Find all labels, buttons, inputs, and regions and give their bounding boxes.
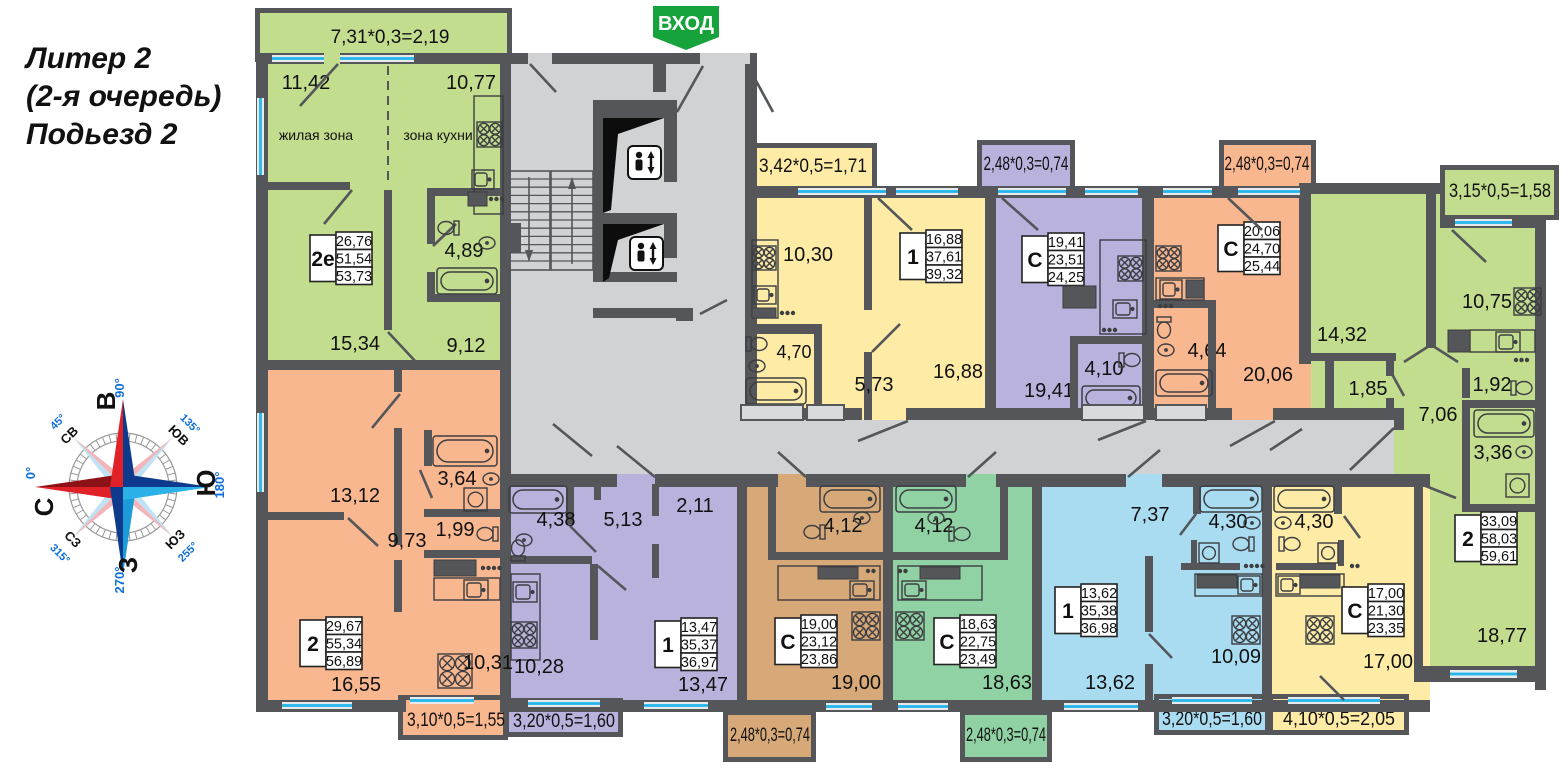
svg-text:51,54: 51,54 xyxy=(336,251,372,267)
svg-text:36,98: 36,98 xyxy=(1081,621,1117,637)
svg-text:14,32: 14,32 xyxy=(1317,324,1367,346)
svg-text:4,12: 4,12 xyxy=(915,515,954,537)
svg-text:1: 1 xyxy=(662,634,674,657)
svg-text:19,41: 19,41 xyxy=(1024,380,1074,402)
svg-text:9,73: 9,73 xyxy=(388,530,427,552)
svg-text:10,09: 10,09 xyxy=(1211,646,1261,668)
svg-text:СЗ: СЗ xyxy=(61,528,84,551)
svg-text:23,49: 23,49 xyxy=(960,652,996,668)
svg-text:90°: 90° xyxy=(112,378,127,398)
svg-text:180°: 180° xyxy=(212,472,227,499)
svg-text:5,13: 5,13 xyxy=(604,509,643,531)
svg-text:36,97: 36,97 xyxy=(681,655,717,671)
svg-text:59,61: 59,61 xyxy=(1481,549,1517,565)
svg-text:16,55: 16,55 xyxy=(331,674,381,696)
svg-text:270°: 270° xyxy=(112,567,127,594)
svg-text:16,88: 16,88 xyxy=(926,232,962,248)
svg-text:1,99: 1,99 xyxy=(436,519,475,541)
svg-text:25,44: 25,44 xyxy=(1244,259,1280,275)
svg-text:7,06: 7,06 xyxy=(1419,404,1458,426)
svg-text:10,77: 10,77 xyxy=(446,72,496,94)
svg-text:4,89: 4,89 xyxy=(445,240,484,262)
svg-text:18,77: 18,77 xyxy=(1477,625,1527,647)
svg-text:18,63: 18,63 xyxy=(982,672,1032,694)
svg-text:19,00: 19,00 xyxy=(801,617,837,633)
svg-text:3,15*0,5=1,58: 3,15*0,5=1,58 xyxy=(1449,181,1551,202)
svg-text:1: 1 xyxy=(1062,600,1074,623)
svg-text:2,48*0,3=0,74: 2,48*0,3=0,74 xyxy=(730,725,810,746)
svg-text:С: С xyxy=(1223,238,1238,261)
svg-text:4,64: 4,64 xyxy=(1188,340,1227,362)
svg-text:3,20*0,5=1,60: 3,20*0,5=1,60 xyxy=(513,711,615,732)
svg-text:3,36: 3,36 xyxy=(1474,442,1513,464)
svg-text:13,47: 13,47 xyxy=(678,674,728,696)
svg-text:3,20*0,5=1,60: 3,20*0,5=1,60 xyxy=(1162,709,1262,730)
svg-text:2,48*0,3=0,74: 2,48*0,3=0,74 xyxy=(984,154,1069,175)
svg-text:13,62: 13,62 xyxy=(1085,672,1135,694)
svg-text:Подьезд 2: Подьезд 2 xyxy=(26,118,178,151)
svg-text:4,30: 4,30 xyxy=(1295,511,1334,533)
svg-text:23,35: 23,35 xyxy=(1368,621,1404,637)
svg-text:24,70: 24,70 xyxy=(1244,241,1280,257)
svg-text:23,12: 23,12 xyxy=(801,634,837,650)
svg-text:9,12: 9,12 xyxy=(447,335,486,357)
svg-text:3,10*0,5=1,55: 3,10*0,5=1,55 xyxy=(407,710,505,731)
svg-text:24,25: 24,25 xyxy=(1048,270,1084,286)
svg-text:7,31*0,3=2,19: 7,31*0,3=2,19 xyxy=(331,27,450,48)
svg-text:2: 2 xyxy=(1462,528,1474,551)
svg-text:13,12: 13,12 xyxy=(330,485,380,507)
svg-text:С: С xyxy=(939,631,954,654)
svg-text:4,38: 4,38 xyxy=(537,509,576,531)
svg-text:39,32: 39,32 xyxy=(926,267,962,283)
svg-text:35,38: 35,38 xyxy=(1081,603,1117,619)
svg-text:1,85: 1,85 xyxy=(1349,378,1388,400)
svg-text:2: 2 xyxy=(307,633,319,656)
svg-text:13,47: 13,47 xyxy=(681,620,717,636)
svg-text:10,28: 10,28 xyxy=(514,656,564,678)
svg-text:35,37: 35,37 xyxy=(681,637,717,653)
svg-text:1: 1 xyxy=(907,246,919,269)
svg-text:15,34: 15,34 xyxy=(330,333,380,355)
svg-text:13,62: 13,62 xyxy=(1081,586,1117,602)
svg-text:С: С xyxy=(780,631,795,654)
svg-text:20,06: 20,06 xyxy=(1243,364,1293,386)
svg-text:4,10: 4,10 xyxy=(1085,358,1124,380)
svg-text:7,37: 7,37 xyxy=(1131,504,1170,526)
svg-text:2,48*0,3=0,74: 2,48*0,3=0,74 xyxy=(966,725,1046,746)
svg-text:4,70: 4,70 xyxy=(776,342,811,362)
svg-text:Литер 2: Литер 2 xyxy=(24,42,152,75)
svg-text:37,61: 37,61 xyxy=(926,249,962,265)
svg-text:53,73: 53,73 xyxy=(336,269,372,285)
svg-text:2,48*0,3=0,74: 2,48*0,3=0,74 xyxy=(1225,154,1310,175)
svg-text:0°: 0° xyxy=(23,467,38,479)
svg-text:55,34: 55,34 xyxy=(326,636,362,652)
svg-text:4,10*0,5=2,05: 4,10*0,5=2,05 xyxy=(1283,709,1395,730)
svg-text:20,06: 20,06 xyxy=(1244,224,1280,240)
svg-text:С: С xyxy=(1027,249,1042,272)
svg-text:10,31: 10,31 xyxy=(463,652,513,674)
svg-text:(2-я очередь): (2-я очередь) xyxy=(26,80,221,113)
svg-text:жилая зона: жилая зона xyxy=(279,127,353,143)
svg-text:2,11: 2,11 xyxy=(676,495,713,517)
svg-text:С: С xyxy=(29,497,59,516)
svg-text:23,51: 23,51 xyxy=(1048,252,1084,268)
svg-text:58,03: 58,03 xyxy=(1481,531,1517,547)
svg-text:56,89: 56,89 xyxy=(326,654,362,670)
svg-text:16,88: 16,88 xyxy=(933,361,983,383)
svg-text:10,30: 10,30 xyxy=(783,244,833,266)
svg-text:17,00: 17,00 xyxy=(1368,586,1404,602)
svg-text:11,42: 11,42 xyxy=(282,72,331,94)
svg-text:21,30: 21,30 xyxy=(1368,603,1404,619)
svg-text:5,73: 5,73 xyxy=(855,374,894,396)
svg-text:1,92: 1,92 xyxy=(1473,374,1512,396)
svg-text:зона кухни: зона кухни xyxy=(403,127,472,143)
svg-text:4,12: 4,12 xyxy=(824,515,863,537)
svg-text:33,09: 33,09 xyxy=(1481,514,1517,530)
svg-text:ВХОД: ВХОД xyxy=(658,13,714,35)
svg-text:29,67: 29,67 xyxy=(326,619,362,635)
svg-text:18,63: 18,63 xyxy=(960,617,996,633)
svg-text:315°: 315° xyxy=(47,542,72,567)
svg-text:4,30: 4,30 xyxy=(1209,511,1248,533)
svg-text:19,41: 19,41 xyxy=(1048,235,1084,251)
svg-text:С: С xyxy=(1347,600,1362,623)
svg-text:17,00: 17,00 xyxy=(1363,651,1413,673)
svg-text:3,64: 3,64 xyxy=(438,468,477,490)
svg-text:2е: 2е xyxy=(311,248,334,271)
svg-text:22,75: 22,75 xyxy=(960,634,996,650)
svg-text:23,86: 23,86 xyxy=(801,652,837,668)
svg-text:19,00: 19,00 xyxy=(831,672,881,694)
svg-text:26,76: 26,76 xyxy=(336,234,372,250)
svg-text:3,42*0,5=1,71: 3,42*0,5=1,71 xyxy=(759,156,867,177)
svg-text:10,75: 10,75 xyxy=(1462,291,1512,313)
